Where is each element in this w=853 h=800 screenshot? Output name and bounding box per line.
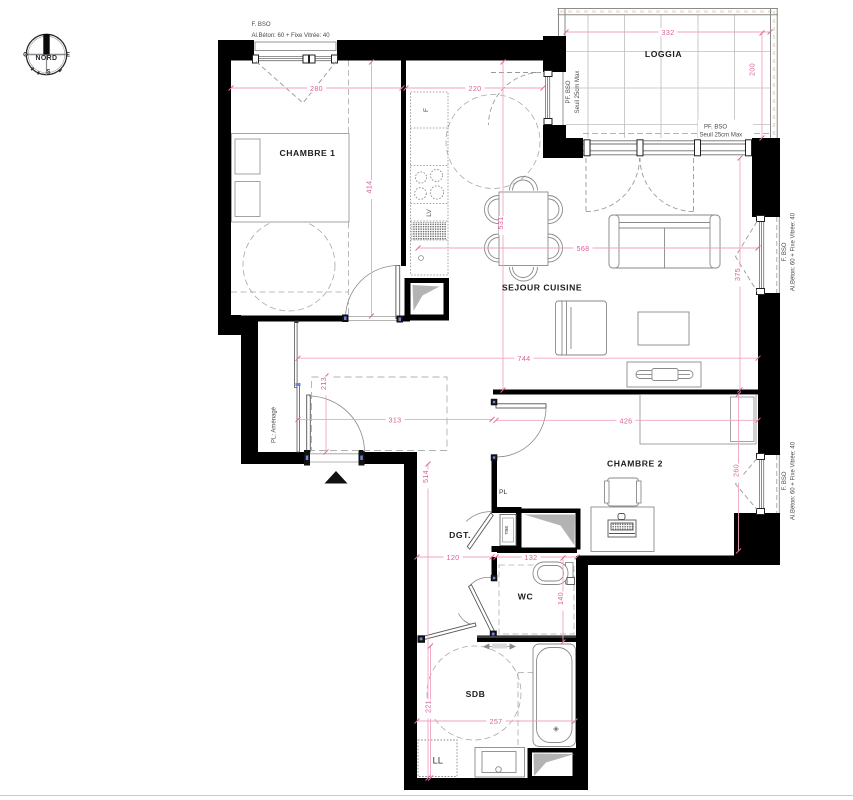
svg-text:257: 257 <box>490 717 503 726</box>
svg-text:375: 375 <box>733 268 742 281</box>
svg-text:Al.Béton: 60 + Fixe Vitrée: 40: Al.Béton: 60 + Fixe Vitrée: 40 <box>791 441 797 520</box>
svg-text:PL: Aménagé: PL: Aménagé <box>272 406 278 443</box>
svg-text:140: 140 <box>556 592 565 605</box>
svg-text:531: 531 <box>496 217 505 230</box>
svg-text:F. BSO: F. BSO <box>782 471 788 490</box>
svg-text:Seuil 25cm Max: Seuil 25cm Max <box>575 71 581 114</box>
svg-text:TBE: TBE <box>504 526 509 535</box>
svg-text:CHAMBRE 2: CHAMBRE 2 <box>607 459 663 469</box>
svg-text:CHAMBRE 1: CHAMBRE 1 <box>279 148 335 158</box>
svg-text:DGT.: DGT. <box>449 530 471 540</box>
svg-text:132: 132 <box>525 553 538 562</box>
svg-text:280: 280 <box>310 84 323 93</box>
svg-text:260: 260 <box>731 464 740 477</box>
svg-text:Al.Béton: 60 + Fixe Vitrée: 40: Al.Béton: 60 + Fixe Vitrée: 40 <box>791 212 797 291</box>
svg-text:120: 120 <box>447 553 460 562</box>
svg-text:O: O <box>23 52 28 59</box>
svg-text:Al.Béton: 60 + Fixe Vitrée: 40: Al.Béton: 60 + Fixe Vitrée: 40 <box>252 33 331 39</box>
svg-text:LOGGIA: LOGGIA <box>645 49 682 59</box>
svg-text:SEJOUR CUISINE: SEJOUR CUISINE <box>502 283 582 293</box>
svg-text:LV: LV <box>426 209 433 217</box>
svg-text:PF. BSO: PF. BSO <box>704 125 727 131</box>
svg-text:F. BSO: F. BSO <box>252 22 271 28</box>
svg-text:F: F <box>423 108 430 112</box>
svg-text:200: 200 <box>747 63 756 76</box>
svg-text:221: 221 <box>423 700 432 713</box>
svg-text:313: 313 <box>389 415 402 424</box>
svg-text:PF. BSO: PF. BSO <box>566 80 572 103</box>
svg-text:Seuil 25cm Max: Seuil 25cm Max <box>700 133 743 139</box>
svg-text:PL: PL <box>499 489 508 496</box>
svg-text:S: S <box>46 69 50 76</box>
svg-text:332: 332 <box>662 28 675 37</box>
svg-text:426: 426 <box>620 416 633 425</box>
svg-text:414: 414 <box>365 181 374 194</box>
svg-text:744: 744 <box>518 354 531 363</box>
svg-text:SDB: SDB <box>466 689 486 699</box>
svg-text:514: 514 <box>421 470 430 483</box>
svg-text:F. BSO: F. BSO <box>782 242 788 261</box>
svg-text:WC: WC <box>518 592 533 602</box>
svg-text:568: 568 <box>577 244 590 253</box>
svg-text:213: 213 <box>319 377 328 390</box>
svg-text:E: E <box>66 52 70 59</box>
svg-text:220: 220 <box>469 84 482 93</box>
svg-text:NORD: NORD <box>36 55 58 62</box>
svg-text:LL: LL <box>433 756 444 767</box>
